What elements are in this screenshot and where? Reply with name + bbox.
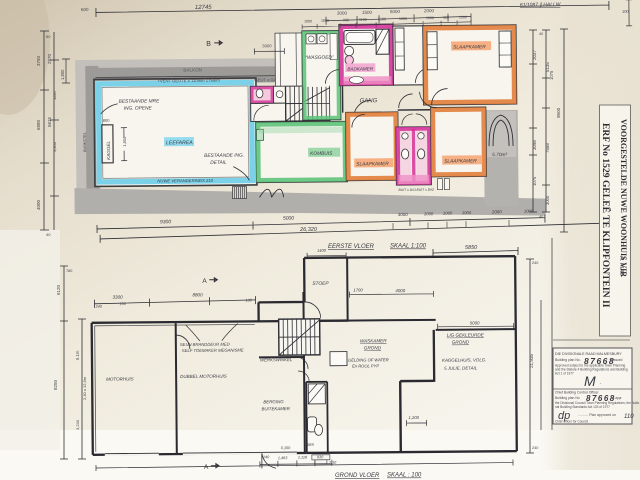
svg-text:3000: 3000 xyxy=(262,43,272,48)
svg-text:.: . xyxy=(600,380,601,386)
svg-text:8800: 8800 xyxy=(192,292,203,297)
svg-text:240: 240 xyxy=(262,455,270,459)
svg-text:is appr.: is appr. xyxy=(612,396,623,400)
svg-text:2100: 2100 xyxy=(378,17,386,21)
svg-text:KAGGEL: KAGGEL xyxy=(106,140,111,159)
svg-text:5000: 5000 xyxy=(283,216,294,222)
svg-text:nal Building Standards Act 103: nal Building Standards Act 103 of 1977 xyxy=(555,405,610,409)
svg-text:9300: 9300 xyxy=(160,219,171,225)
svg-text:8250: 8250 xyxy=(53,379,58,390)
svg-text:Building plan No.: Building plan No. xyxy=(555,358,581,362)
svg-text:1075: 1075 xyxy=(532,176,537,186)
svg-text:1000: 1000 xyxy=(524,208,534,213)
svg-text:2,40 x 12,6m: 2,40 x 12,6m xyxy=(82,376,87,400)
svg-text:21,935: 21,935 xyxy=(529,354,534,368)
svg-text:130: 130 xyxy=(119,302,126,306)
svg-text:LEEFAREA: LEEFAREA xyxy=(166,140,193,146)
svg-text:800: 800 xyxy=(103,118,110,123)
svg-text:BADKAMER: BADKAMER xyxy=(347,66,374,71)
svg-text:1000: 1000 xyxy=(304,19,312,23)
svg-text:NUWE VERANDERINGS 210: NUWE VERANDERINGS 210 xyxy=(157,178,213,184)
svg-text:3098: 3098 xyxy=(532,140,537,150)
svg-text:ERF No 1529 GELEË TE KLIPFONTE: ERF No 1529 GELEË TE KLIPFONTEIN II xyxy=(600,123,613,308)
svg-text:1,800: 1,800 xyxy=(122,136,127,147)
svg-text:BESTAANDE ING.: BESTAANDE ING. xyxy=(204,153,244,159)
svg-text:BANKSTEL: BANKSTEL xyxy=(83,132,87,152)
svg-text:240: 240 xyxy=(532,261,538,265)
svg-text:2,10: 2,10 xyxy=(328,461,337,465)
svg-text:5.1m: 5.1m xyxy=(75,350,80,360)
svg-text:40: 40 xyxy=(46,232,51,237)
svg-text:En ROOL PYP: En ROOL PYP xyxy=(352,363,379,368)
svg-text:DETAIL: DETAIL xyxy=(210,160,227,166)
svg-text:780: 780 xyxy=(66,269,72,273)
svg-text:BERGING: BERGING xyxy=(263,399,284,404)
svg-text:BALKON: BALKON xyxy=(183,67,202,72)
svg-text:0,100: 0,100 xyxy=(281,446,291,450)
svg-text:LIG GEKLEURDE: LIG GEKLEURDE xyxy=(447,332,485,337)
svg-text:1100: 1100 xyxy=(359,18,367,22)
svg-text:SKAAL 1:100: SKAAL 1:100 xyxy=(390,244,427,250)
svg-text:40: 40 xyxy=(539,215,543,219)
svg-text:5000: 5000 xyxy=(470,320,480,325)
svg-text:SELF TOEMAKER MEGANISME: SELF TOEMAKER MEGANISME xyxy=(182,347,244,353)
svg-text:2970: 2970 xyxy=(47,53,52,64)
svg-text:BUIT x D#2: BUIT x D#2 xyxy=(416,188,434,192)
svg-text:1000: 1000 xyxy=(426,16,434,20)
svg-text:130: 130 xyxy=(245,298,252,302)
svg-text:STOEP: STOEP xyxy=(312,281,329,287)
svg-text:900: 900 xyxy=(343,18,349,22)
svg-text:240: 240 xyxy=(532,446,538,450)
svg-text:Chief officer for Council: Chief officer for Council xyxy=(555,420,588,424)
svg-text:A. HUIS: A. HUIS xyxy=(618,255,624,276)
svg-text:DUBBEL MOTORHUIS: DUBBEL MOTORHUIS xyxy=(180,374,227,379)
svg-text:SKAAL : 100: SKAAL : 100 xyxy=(387,473,422,479)
svg-text:6120: 6120 xyxy=(56,284,61,295)
svg-text:1100: 1100 xyxy=(52,91,57,100)
svg-text:MOTORHUIS: MOTORHUIS xyxy=(106,376,133,381)
svg-text:Act 1 of 1977: Act 1 of 1977 xyxy=(555,372,574,376)
svg-text:BUITEKAMER: BUITEKAMER xyxy=(261,406,290,411)
svg-text:GELDING OF WATER: GELDING OF WATER xyxy=(348,357,389,362)
svg-text:3300: 3300 xyxy=(112,295,123,300)
svg-text:5.70m²: 5.70m² xyxy=(492,152,507,158)
svg-text:240: 240 xyxy=(95,305,103,309)
svg-text:3000: 3000 xyxy=(398,212,408,217)
svg-text:M: M xyxy=(584,373,596,389)
svg-text:26,320: 26,320 xyxy=(299,227,318,233)
svg-text:WERKSWINKEL: WERKSWINKEL xyxy=(260,357,293,362)
svg-text:ING. OPENE: ING. OPENE xyxy=(124,105,153,111)
svg-text:GROND: GROND xyxy=(452,340,470,345)
svg-text:3,800: 3,800 xyxy=(52,141,57,152)
svg-text:600: 600 xyxy=(81,7,89,12)
svg-text:1,118: 1,118 xyxy=(298,456,308,460)
svg-text:B: B xyxy=(206,41,211,48)
svg-text:1,463: 1,463 xyxy=(278,456,288,460)
svg-text:BESTAANDE MRE: BESTAANDE MRE xyxy=(119,98,161,104)
svg-text:1800: 1800 xyxy=(321,19,329,23)
svg-text:1000: 1000 xyxy=(424,211,434,216)
svg-text:SEUN BRANDDEUR MED: SEUN BRANDDEUR MED xyxy=(180,342,230,347)
svg-text:12745: 12745 xyxy=(195,5,212,11)
svg-text:GANG: GANG xyxy=(360,98,378,104)
svg-text:EERSTE VLOER: EERSTE VLOER xyxy=(328,244,375,250)
svg-text:9500: 9500 xyxy=(556,107,561,118)
svg-text:SLAAPKAMER: SLAAPKAMER xyxy=(356,161,389,167)
svg-text:"WASGOED": "WASGOED" xyxy=(305,55,334,61)
svg-text:2037: 2037 xyxy=(532,50,537,60)
svg-text:6880: 6880 xyxy=(36,119,41,130)
svg-text:A: A xyxy=(204,464,209,471)
svg-text:60: 60 xyxy=(46,34,51,39)
svg-text:3000: 3000 xyxy=(337,11,348,16)
svg-text:KAGGELHUIS, VOLG.: KAGGELHUIS, VOLG. xyxy=(442,357,486,362)
svg-text:3750: 3750 xyxy=(36,55,41,66)
svg-text:3000: 3000 xyxy=(545,195,550,205)
svg-text:SLAAPKAMER: SLAAPKAMER xyxy=(453,44,486,50)
svg-text:1,800: 1,800 xyxy=(60,69,65,80)
svg-text:7558: 7558 xyxy=(545,143,550,153)
svg-text:5135: 5135 xyxy=(545,62,550,72)
svg-text:5000: 5000 xyxy=(390,9,401,14)
svg-text:1500: 1500 xyxy=(362,10,373,15)
svg-text:BUIT x D#1: BUIT x D#1 xyxy=(398,188,416,192)
svg-text:GROND VLOER: GROND VLOER xyxy=(335,473,380,479)
svg-text:100: 100 xyxy=(622,9,629,14)
svg-text:GROND: GROND xyxy=(364,345,382,350)
svg-text:1700: 1700 xyxy=(353,287,363,292)
svg-text:5615: 5615 xyxy=(47,116,52,127)
svg-text:1400: 1400 xyxy=(317,248,327,253)
svg-text:SMX: SMX xyxy=(306,443,315,447)
svg-text:4000: 4000 xyxy=(395,288,405,293)
svg-text:........... Plan approved on: ........... Plan approved on xyxy=(578,413,616,417)
svg-text:61/1087 ∥ HALLW: 61/1087 ∥ HALLW xyxy=(520,2,562,8)
svg-text:900: 900 xyxy=(443,16,449,20)
svg-text:40: 40 xyxy=(539,32,543,36)
svg-text:1000: 1000 xyxy=(399,17,407,21)
svg-text:4000: 4000 xyxy=(36,199,41,210)
svg-text:1,200: 1,200 xyxy=(408,415,419,420)
svg-text:+VENT GEUTE x 110mm 175mm: +VENT GEUTE x 110mm 175mm xyxy=(157,78,220,84)
svg-text:SLAAPKAMER: SLAAPKAMER xyxy=(444,158,477,164)
svg-text:1075: 1075 xyxy=(549,70,554,80)
svg-text:Building plan No: Building plan No xyxy=(555,396,580,400)
svg-text:110: 110 xyxy=(624,414,634,420)
svg-text:VOORGESTELDE NUWE WOONHUIS VIR: VOORGESTELDE NUWE WOONHUIS VIR xyxy=(619,119,628,277)
svg-text:1000: 1000 xyxy=(462,210,472,215)
svg-text:930: 930 xyxy=(317,455,324,459)
svg-text:5850: 5850 xyxy=(465,245,478,251)
svg-text:1500: 1500 xyxy=(459,15,467,19)
svg-text:2000: 2000 xyxy=(491,209,502,214)
svg-text:KOMBUIS: KOMBUIS xyxy=(310,151,333,157)
svg-text:WASKAMER: WASKAMER xyxy=(360,338,387,343)
svg-text:1000: 1000 xyxy=(443,211,453,216)
svg-text:is issued: is issued xyxy=(610,358,623,362)
svg-text:2000: 2000 xyxy=(424,8,435,13)
svg-text:3,240: 3,240 xyxy=(75,419,80,430)
svg-text:A: A xyxy=(202,278,207,285)
svg-text:5 JULIE, DETAIL: 5 JULIE, DETAIL xyxy=(444,365,478,370)
